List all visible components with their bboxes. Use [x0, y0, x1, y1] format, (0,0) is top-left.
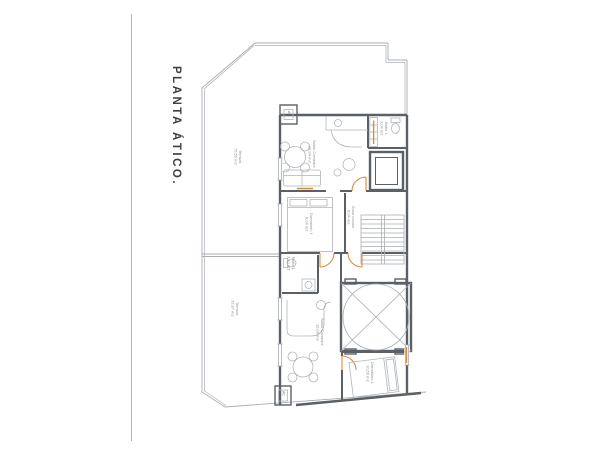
drawing-sheet: PLANTA ÁTICO.	[0, 0, 615, 454]
stairs	[361, 215, 404, 264]
elevator-shaft	[376, 158, 398, 185]
room-label-bano-1: Baño 1 3,04 m2	[379, 121, 388, 135]
room-label-bano-2: Baño 1 3,10 m2	[286, 256, 295, 270]
room-label-dormitorio-2: Dormitorio 1 10,56 m2	[365, 362, 374, 384]
room-label-terraza-sur: Terraza 33,87 m2	[230, 300, 239, 317]
ac-unit-2-label: AC	[281, 391, 285, 396]
patio-lightwell	[341, 283, 411, 351]
room-label-salon-1: Salón Comedor 19,34 m2	[307, 140, 316, 168]
room-label-terraza-norte: Terraza 76,59 m2	[233, 148, 242, 165]
room-label-salon-2: Salón Comedor 19,06 m2	[315, 318, 324, 346]
ac-unit-1-label: AC	[286, 111, 290, 116]
room-label-zona-comun: Zona común 8,04 m2	[346, 206, 355, 228]
room-label-dormitorio-1: Dormitorio 1 9,04 m2	[304, 213, 313, 235]
